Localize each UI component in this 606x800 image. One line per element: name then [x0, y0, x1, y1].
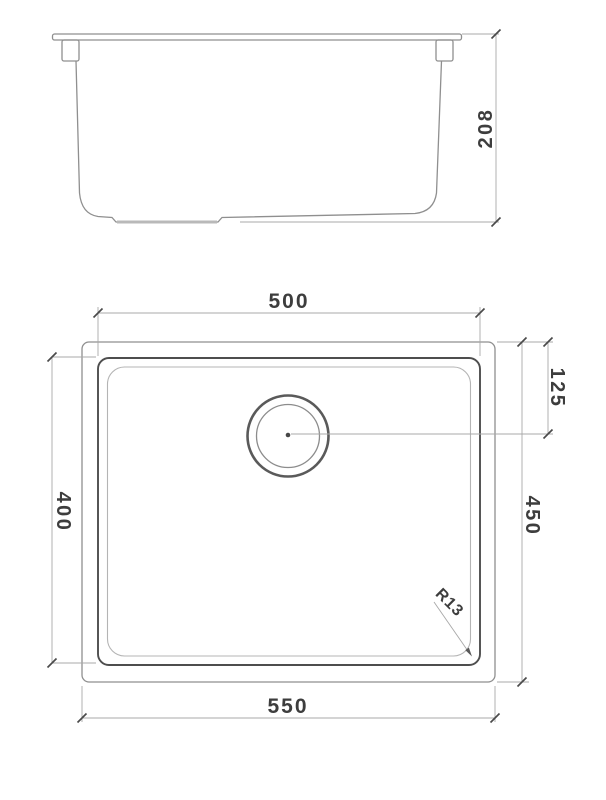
dim-height: 208: [240, 30, 501, 227]
side-view: 208: [53, 30, 501, 227]
dim-label-inner-depth: 400: [52, 492, 74, 533]
sink-technical-drawing-page: 208 500: [0, 0, 606, 800]
drain-center-dot: [286, 433, 291, 438]
corner-radius-callout: R13: [432, 585, 472, 656]
plan-outer-rim: [82, 342, 495, 682]
side-view-rim: [53, 34, 462, 40]
sink-technical-drawing: 208 500: [0, 0, 606, 800]
dim-label-corner-radius: R13: [432, 585, 467, 620]
dim-label-height: 208: [475, 108, 497, 149]
dim-drain-offset: 125: [291, 338, 568, 439]
plan-bowl-bottom: [108, 367, 471, 656]
mounting-clip-left: [62, 40, 79, 61]
dim-outer-depth: 450: [497, 338, 553, 687]
drain: [248, 396, 329, 477]
sink-body-outline: [76, 61, 442, 222]
dim-outer-width: 550: [78, 686, 500, 723]
plan-view: 500 550 400: [48, 290, 569, 723]
mounting-clip-right: [436, 40, 453, 61]
dim-label-inner-width: 500: [268, 290, 309, 313]
dim-inner-width: 500: [94, 290, 485, 356]
dim-label-outer-width: 550: [267, 695, 308, 718]
dim-inner-depth: 400: [48, 353, 97, 668]
dim-label-outer-depth: 450: [521, 496, 543, 537]
dim-label-drain-offset: 125: [546, 368, 568, 409]
